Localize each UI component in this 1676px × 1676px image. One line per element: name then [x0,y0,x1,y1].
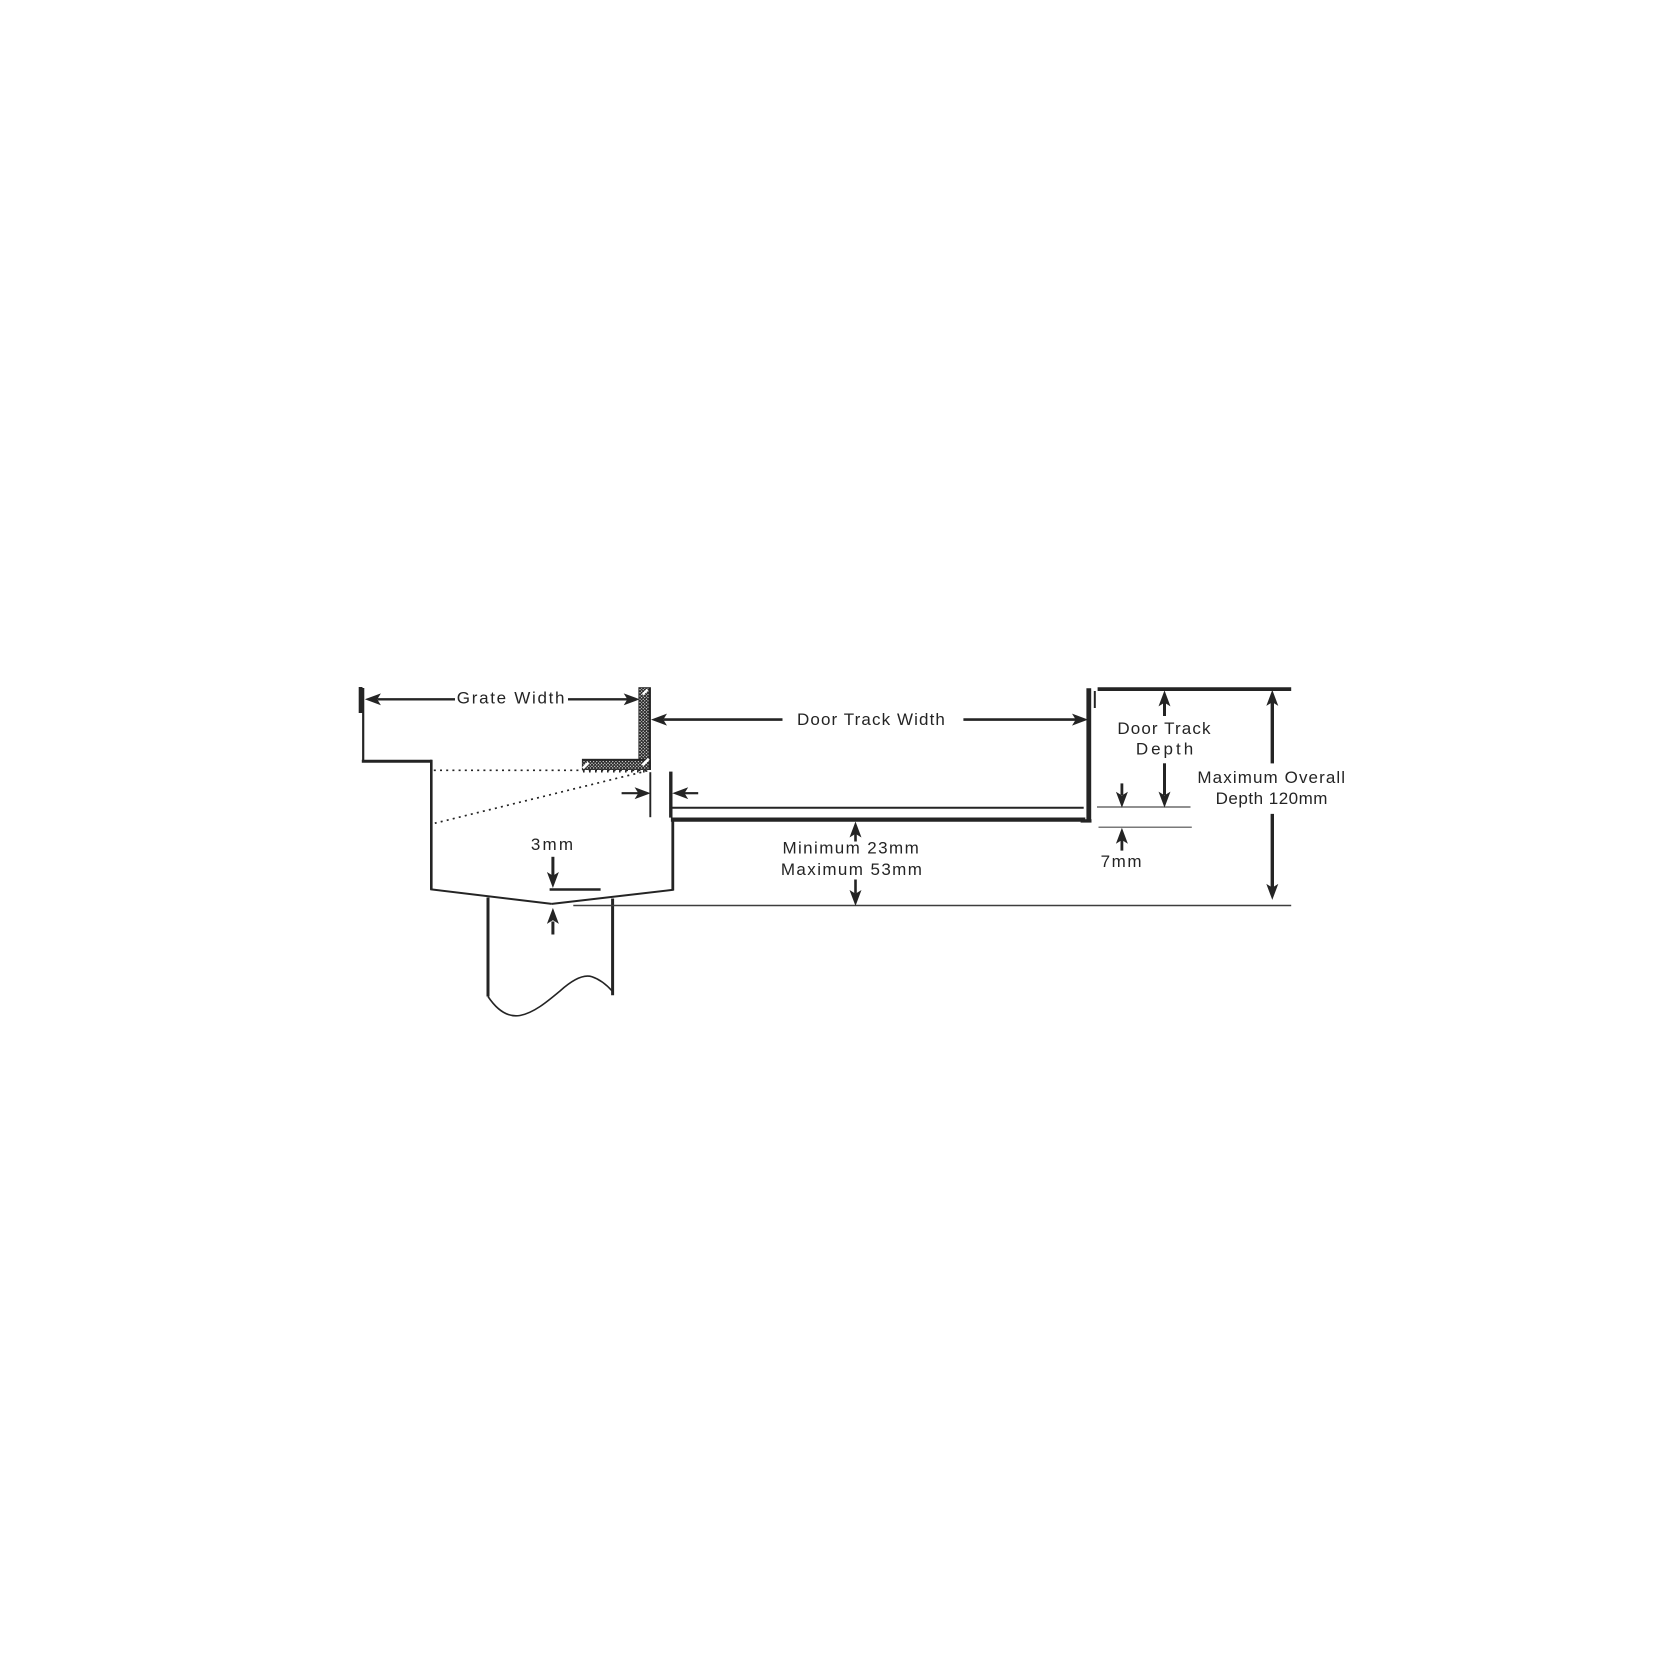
svg-text:Depth 120mm: Depth 120mm [1216,789,1328,808]
svg-text:Maximum Overall: Maximum Overall [1197,768,1346,787]
svg-text:Depth: Depth [1136,740,1196,759]
svg-text:Door Track Width: Door Track Width [797,710,946,729]
svg-text:Door Track: Door Track [1117,719,1211,738]
svg-text:Grate Width: Grate Width [457,689,566,708]
svg-text:3mm: 3mm [531,835,575,854]
svg-text:7mm: 7mm [1101,852,1144,871]
svg-text:Maximum 53mm: Maximum 53mm [781,860,923,879]
svg-text:Minimum 23mm: Minimum 23mm [782,838,920,857]
